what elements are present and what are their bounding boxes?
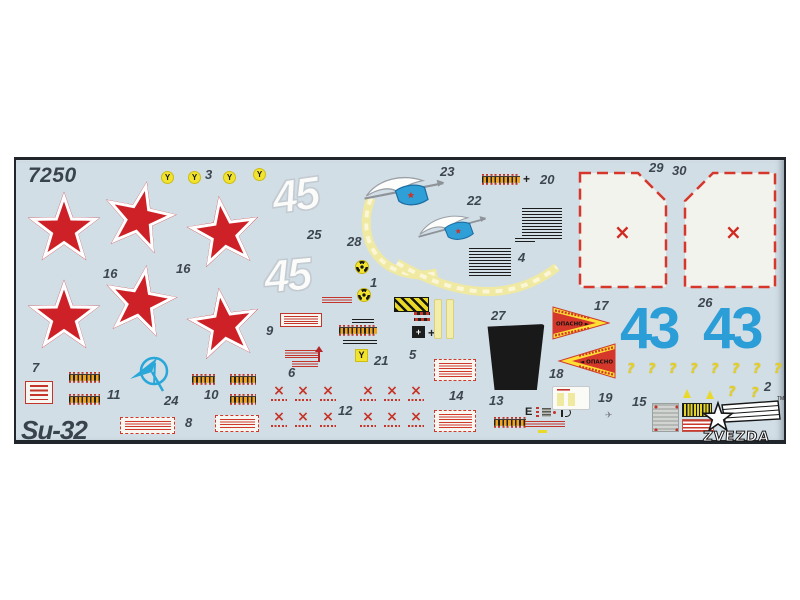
- red-stencil-text-box: [215, 415, 259, 432]
- no-step-cross-decal: ×: [384, 386, 400, 401]
- orange-stripe-stencil-decal: [230, 394, 256, 405]
- no-step-cross-decal: ×: [360, 386, 376, 401]
- no-step-cross-decal: ×: [320, 412, 336, 427]
- red-stencil-text: [525, 421, 565, 428]
- yellow-marker-decal: ?: [774, 362, 782, 377]
- no-step-cross-decal: ×: [271, 386, 287, 401]
- no-step-cross-decal: ×: [384, 412, 400, 427]
- stencil-text-block: [515, 238, 535, 243]
- bort-number-45-decal: 45: [268, 165, 320, 225]
- red-star-decal: [181, 281, 267, 370]
- callout-4: 4: [518, 250, 525, 265]
- no-step-panel-decal: ×: [683, 171, 777, 289]
- yellow-strip-decal: [434, 299, 442, 339]
- dot-stencil-row: [414, 312, 430, 315]
- red-star-decal: [26, 190, 102, 269]
- red-star-decal: [94, 172, 185, 265]
- hatched-warning-decal: [394, 297, 429, 312]
- yellow-marker-decal: ?: [711, 362, 719, 377]
- red-placard-decal: [280, 313, 322, 327]
- bort-number-43-text: 43: [620, 301, 677, 357]
- orange-stripe-stencil-decal: [230, 374, 256, 385]
- callout-22: 22: [467, 193, 481, 208]
- orange-stripe-stencil-decal: [192, 374, 215, 385]
- ladder-plate-decal: [552, 386, 590, 410]
- radiation-trefoil-decal: [357, 288, 371, 302]
- radiation-trefoil-decal: [355, 260, 369, 274]
- danger-pennant-decal: ◄ ОПАСНО: [556, 343, 616, 379]
- pennant-text: ◄ ОПАСНО: [580, 360, 613, 366]
- no-step-panel-decal: ×: [578, 171, 668, 289]
- callout-27: 27: [491, 308, 505, 323]
- danger-pennant-decal: ОПАСНО ►: [552, 306, 610, 340]
- yellow-dash-stencil: [538, 430, 547, 433]
- callout-7: 7: [32, 360, 39, 375]
- orange-stripe-stencil-decal: [494, 417, 526, 428]
- no-step-cross-decal: ×: [360, 412, 376, 427]
- pennant-text: ОПАСНО ►: [556, 322, 590, 328]
- red-star-decal: [181, 189, 267, 278]
- stencil-text-block: [343, 340, 377, 346]
- callout-5: 5: [409, 347, 416, 362]
- anti-glare-panel-decal: [487, 324, 545, 390]
- red-dot-stencil: [553, 411, 556, 414]
- orange-stripe-stencil-decal: [339, 325, 377, 336]
- callout-6: 6: [288, 365, 295, 380]
- hazard-square-decal: Y: [355, 349, 368, 362]
- callout-14: 14: [449, 388, 463, 403]
- callout-16: 16: [103, 266, 117, 281]
- grey-stencil-block: [542, 408, 551, 417]
- callout-21: 21: [374, 353, 388, 368]
- hazard-circle-decal: Y: [223, 171, 236, 184]
- callout-8: 8: [185, 415, 192, 430]
- red-stencil-text: [292, 361, 318, 367]
- panel-cross-glyph: ×: [614, 220, 631, 244]
- callout-13: 13: [489, 393, 503, 408]
- zvezda-logo: TM ZVEZDA: [698, 392, 784, 444]
- orange-stripe-stencil-decal: [69, 372, 100, 383]
- sukhoi-logo-decal: [127, 351, 175, 395]
- red-stencil-text: [284, 316, 318, 324]
- stencil-text-block: [469, 248, 511, 278]
- hazard-circle-decal: Y: [253, 168, 266, 181]
- no-step-cross-decal: ×: [408, 412, 424, 427]
- brand-name: ZVEZDA: [702, 429, 770, 444]
- page: { "sheet": { "kit_number": "7250", "airc…: [0, 0, 800, 600]
- yellow-marker-decal: ?: [648, 362, 656, 377]
- orange-stripe-stencil-decal: [69, 394, 100, 405]
- callout-15: 15: [632, 394, 646, 409]
- bort-number-45-decal: 45: [262, 246, 312, 304]
- callout-16: 16: [176, 261, 190, 276]
- callout-1: 1: [370, 275, 377, 290]
- air-force-wing-emblem-decal: [414, 205, 490, 248]
- panel-cross-glyph: ×: [725, 220, 742, 244]
- yellow-marker-decal: ?: [669, 362, 677, 377]
- black-cross-box-decal: +: [412, 326, 425, 338]
- stencil-text-block: [522, 208, 562, 241]
- callout-12: 12: [338, 403, 352, 418]
- dot-stencil-row: [414, 318, 430, 321]
- callout-18: 18: [549, 366, 563, 381]
- hazard-circle-decal: Y: [188, 171, 201, 184]
- trademark-symbol: TM: [777, 396, 784, 402]
- red-stencil-text-box: [434, 410, 476, 432]
- yellow-marker-decal: ?: [732, 362, 740, 377]
- red-star-decal: [26, 278, 102, 357]
- decal-sheet: 7250 Su-32 Y Y 3 Y Y 16 16 45 45 25 28 2…: [14, 157, 786, 444]
- stencil-letter-decal: E: [525, 407, 532, 418]
- yellow-marker-decal: ?: [627, 362, 635, 377]
- aircraft-name: Su-32: [21, 415, 87, 446]
- yellow-marker-decal: ?: [753, 362, 761, 377]
- bort-number-43-text: 43: [703, 301, 760, 357]
- no-step-cross-decal: ×: [295, 412, 311, 427]
- hazard-circle-decal: Y: [161, 171, 174, 184]
- stencil-text-block: [352, 319, 374, 323]
- callout-19: 19: [598, 390, 612, 405]
- orange-stripe-stencil-decal: [482, 174, 520, 185]
- red-stencil-text: [322, 297, 352, 304]
- kit-number: 7250: [28, 164, 77, 188]
- air-force-wing-emblem-decal: [360, 172, 448, 208]
- yellow-marker-decal: ?: [690, 362, 698, 377]
- no-step-cross-decal: ×: [271, 412, 287, 427]
- dot-column-stencil: [536, 407, 539, 417]
- callout-23: 23: [440, 164, 454, 179]
- red-stencil-text-box: [434, 359, 476, 381]
- callout-10: 10: [204, 387, 218, 402]
- callout-24: 24: [164, 393, 178, 408]
- yellow-strip-decal: [446, 299, 454, 339]
- cross-stencil-decal: +: [523, 173, 530, 185]
- callout-3: 3: [205, 167, 212, 182]
- callout-28: 28: [347, 234, 361, 249]
- callout-20: 20: [540, 172, 554, 187]
- grey-pattern-decal: [652, 403, 679, 432]
- callout-25: 25: [307, 227, 321, 242]
- airplane-glyph-stencil: ✈: [605, 412, 613, 421]
- no-step-cross-decal: ×: [295, 386, 311, 401]
- callout-11: 11: [107, 387, 121, 402]
- no-step-cross-decal: ×: [408, 386, 424, 401]
- red-stencil-text-box: [120, 417, 175, 434]
- red-placard-decal: [25, 381, 53, 404]
- yellow-drop-marker: [683, 389, 691, 398]
- no-step-cross-decal: ×: [320, 386, 336, 401]
- callout-9: 9: [266, 323, 273, 338]
